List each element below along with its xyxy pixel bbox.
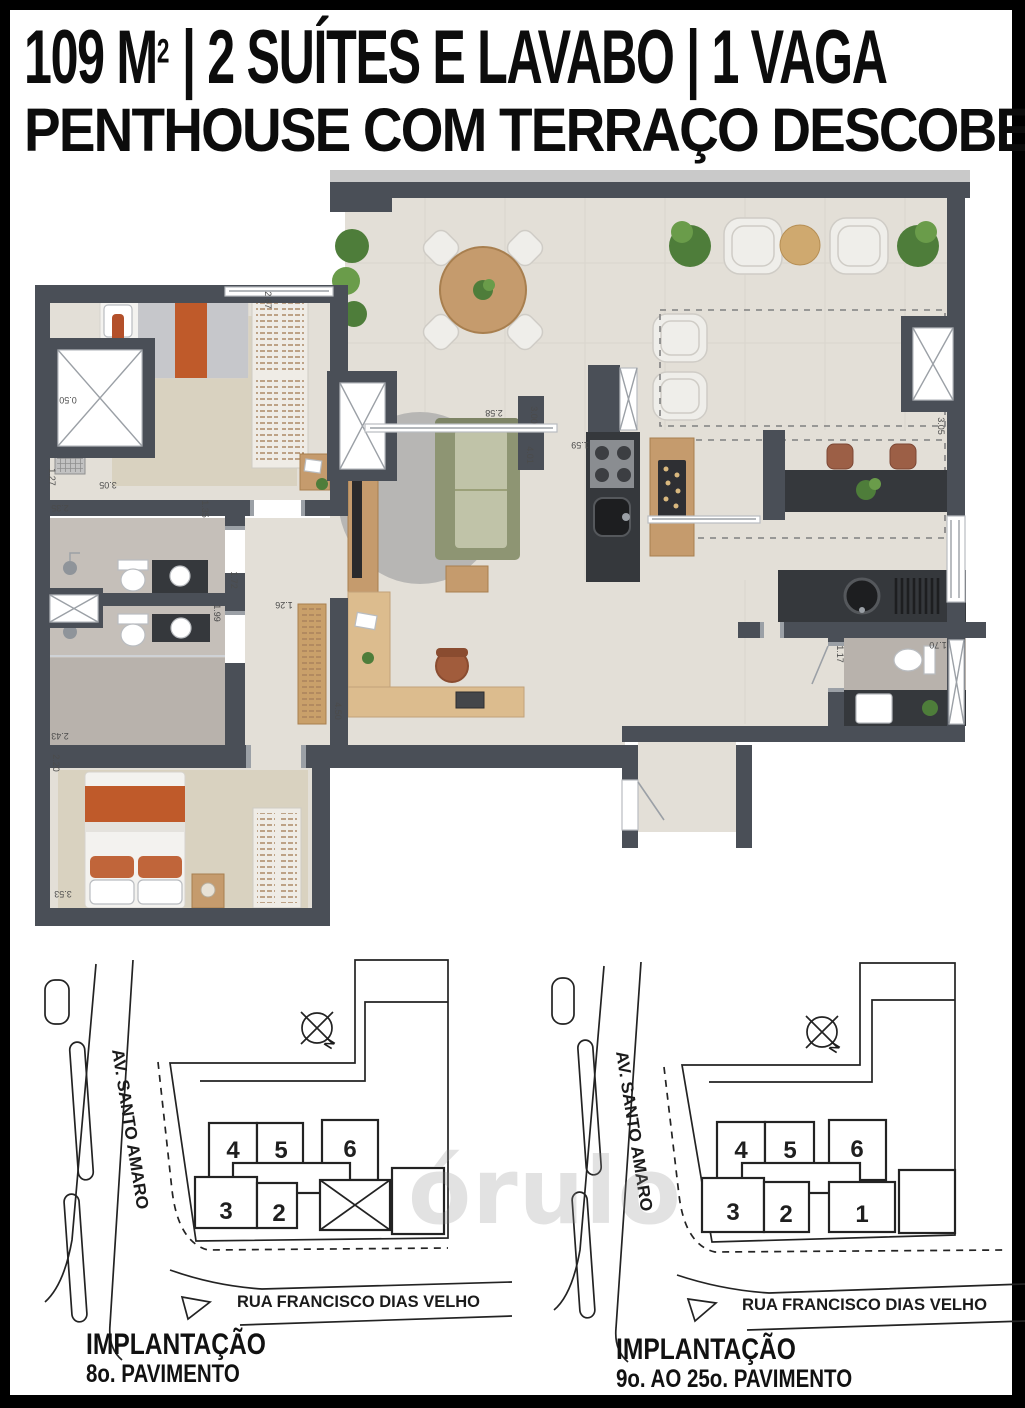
shoe-rack (298, 604, 326, 724)
dim-label: 2.35 (51, 503, 69, 513)
dim-label: 1.70 (929, 640, 947, 650)
unit-label-5: 5 (783, 1137, 796, 1164)
title-line-1: 109 M2 | 2 SUÍTES E LAVABO | 1 VAGA (24, 18, 677, 98)
caption-title: IMPLANTAÇÃO (86, 1327, 266, 1361)
toilet-icon (118, 614, 148, 646)
avenue-label: AV. SANTO AMARO (108, 1048, 152, 1211)
elevator-x-box (913, 328, 953, 400)
dim-label: 1.35 (200, 500, 210, 518)
bar-stool (827, 444, 853, 469)
compass-north-label: N (826, 1040, 844, 1056)
caption: IMPLANTAÇÃO 9o. AO 25o. PAVIMENTO (616, 1332, 852, 1393)
street-label: RUA FRANCISCO DIAS VELHO (237, 1292, 480, 1311)
floor-plan: 2.67 0.50 1.27 3.05 2.35 1.35 1.72 1.99 … (0, 168, 1025, 955)
title-line-2: PENTHOUSE COM TERRAÇO DESCOBERTO (24, 100, 915, 161)
door-x-panel (620, 368, 637, 430)
compass: N (301, 1012, 338, 1052)
unit-label-6: 6 (343, 1136, 356, 1163)
entrance-triangle (688, 1299, 716, 1321)
side-table (446, 566, 488, 592)
dim-label: 1.26 (275, 600, 293, 610)
shaft-x-box (949, 640, 964, 724)
kitchen-island (650, 438, 694, 556)
dim-label: 2.43 (51, 731, 69, 741)
unit-label-4: 4 (226, 1137, 240, 1164)
desk-suite1 (300, 454, 330, 490)
sofa (435, 418, 520, 560)
page-frame: 109 M2 | 2 SUÍTES E LAVABO | 1 VAGA PENT… (0, 0, 1025, 1408)
unit-label-3: 3 (726, 1199, 739, 1226)
caption-title: IMPLANTAÇÃO (616, 1332, 796, 1366)
buildings: 4 5 6 3 2 (195, 1120, 444, 1234)
caption-subtitle: 8o. PAVIMENTO (86, 1359, 240, 1387)
suite-2 (58, 754, 308, 910)
buildings: 4 5 6 3 2 1 (702, 1120, 955, 1233)
wet-counter (778, 570, 966, 622)
closet-suite2 (253, 808, 301, 908)
x-crossed-block (320, 1180, 390, 1230)
caption-subtitle: 9o. AO 25o. PAVIMENTO (616, 1364, 852, 1392)
toilet-icon (894, 646, 935, 674)
desk-chair (436, 648, 468, 682)
shower-icon (63, 561, 77, 575)
superscript-2: 2 (157, 32, 170, 70)
toilet-icon (118, 560, 148, 591)
unit-label-2: 2 (779, 1201, 792, 1228)
unit-label-3: 3 (219, 1198, 232, 1225)
caption: IMPLANTAÇÃO 8o. PAVIMENTO (86, 1327, 266, 1388)
dim-label: 3.00 (529, 406, 539, 424)
dim-label: 2.20 (51, 754, 61, 772)
laptop (456, 692, 484, 708)
stove-icon (590, 440, 634, 488)
dim-label: 4.01 (525, 446, 535, 464)
street-label: RUA FRANCISCO DIAS VELHO (742, 1295, 987, 1314)
page-title: 109 M2 | 2 SUÍTES E LAVABO | 1 VAGA PENT… (24, 18, 1014, 161)
dim-label: 1.99 (212, 604, 222, 622)
dim-label: 3.53 (54, 889, 72, 899)
dim-label: 4.50 (333, 702, 343, 720)
closet-suite1 (252, 290, 308, 468)
dim-label: 1.17 (835, 645, 845, 663)
avenue-label: AV. SANTO AMARO (612, 1050, 656, 1213)
unit-label-6: 6 (850, 1136, 863, 1163)
compass-north-label: N (321, 1036, 339, 1052)
dim-label: 1.59 (571, 440, 589, 450)
unit-label-4: 4 (734, 1137, 748, 1164)
dim-label: 3.05 (936, 417, 946, 435)
shaft-x-box (50, 595, 98, 622)
dim-label: 0.50 (59, 395, 77, 405)
nightstand (192, 874, 224, 908)
bar-stool (890, 444, 916, 469)
compass: N (806, 1016, 843, 1056)
site-plan-9th-25th-floor: 4 5 6 3 2 1 N RUA FRANCISCO DIAS VELHO A… (512, 950, 1025, 1395)
site-plan-8th-floor: 4 5 6 3 2 N RUA FRANCISCO DIAS VELHO AV.… (0, 950, 512, 1395)
sink-icon (594, 498, 630, 536)
dim-label: 2.67 (263, 291, 273, 309)
dim-label: 3.05 (99, 480, 117, 490)
unit-label-1: 1 (855, 1201, 868, 1228)
entrance-triangle (182, 1297, 210, 1319)
unit-label-5: 5 (274, 1137, 287, 1164)
bed-suite2 (85, 772, 185, 908)
unit-label-2: 2 (272, 1200, 285, 1227)
dim-label: 1.72 (229, 571, 239, 589)
dim-label: 2.58 (485, 408, 503, 418)
dim-label: 1.27 (47, 468, 57, 486)
